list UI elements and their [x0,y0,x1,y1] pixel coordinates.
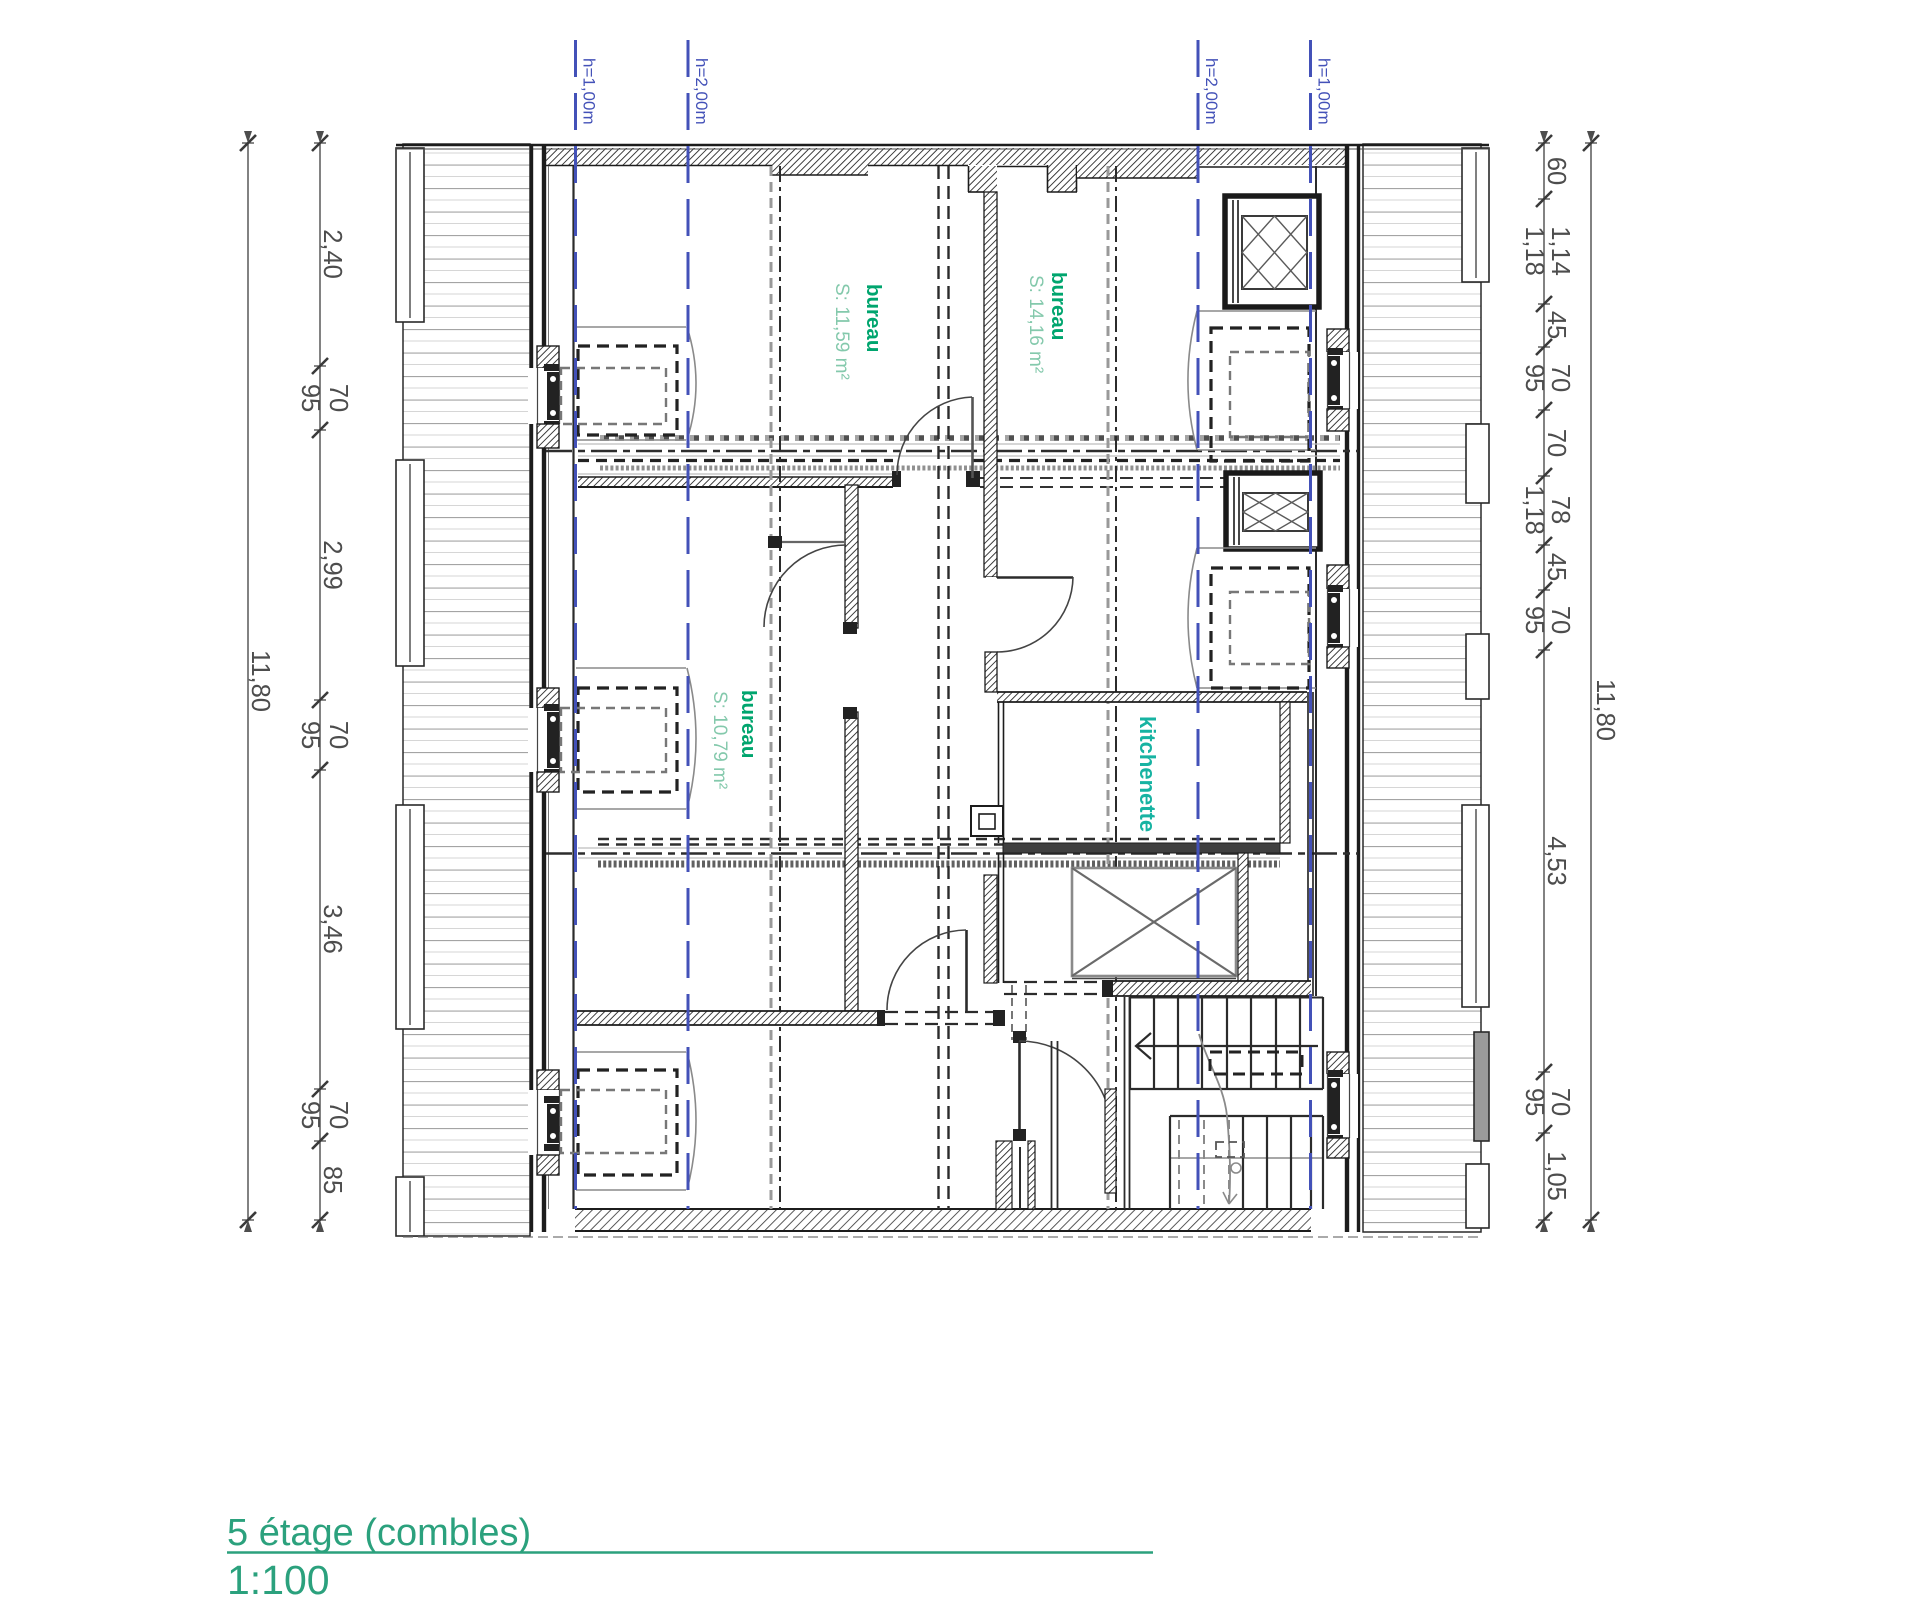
svg-text:11,80: 11,80 [246,650,274,712]
svg-text:1,18: 1,18 [1520,226,1548,276]
svg-text:h=2,00m: h=2,00m [692,58,711,125]
svg-text:bureau: bureau [1047,272,1070,340]
svg-text:70: 70 [1546,606,1574,634]
svg-text:95: 95 [296,1101,324,1129]
svg-text:5 étage (combles): 5 étage (combles) [227,1512,531,1554]
svg-text:h=1,00m: h=1,00m [1315,58,1334,125]
svg-text:45: 45 [1542,553,1570,581]
svg-text:S: 11,59 m²: S: 11,59 m² [831,283,852,380]
svg-text:70: 70 [324,1101,352,1129]
svg-text:bureau: bureau [862,284,885,352]
svg-text:h=2,00m: h=2,00m [1202,58,1221,125]
svg-text:4,53: 4,53 [1542,836,1570,886]
svg-text:95: 95 [1520,606,1548,634]
svg-text:2,99: 2,99 [318,540,346,590]
svg-text:h=1,00m: h=1,00m [580,58,599,125]
svg-text:95: 95 [1520,364,1548,392]
svg-text:1,14: 1,14 [1546,226,1574,276]
svg-text:bureau: bureau [737,690,760,758]
svg-text:95: 95 [1520,1088,1548,1116]
svg-text:1:100: 1:100 [227,1557,330,1600]
svg-text:kitchenette: kitchenette [1135,716,1160,832]
svg-text:78: 78 [1546,496,1574,524]
svg-text:45: 45 [1542,311,1570,339]
svg-text:95: 95 [296,721,324,749]
svg-text:11,80: 11,80 [1591,679,1619,741]
svg-text:S: 14,16 m²: S: 14,16 m² [1025,275,1046,373]
svg-text:85: 85 [318,1166,346,1194]
svg-text:1,18: 1,18 [1520,485,1548,535]
svg-text:70: 70 [324,721,352,749]
svg-text:95: 95 [296,384,324,412]
svg-text:70: 70 [324,384,352,412]
svg-text:2,40: 2,40 [318,229,346,279]
svg-text:1,05: 1,05 [1542,1151,1570,1201]
svg-text:60: 60 [1542,157,1570,185]
svg-text:S: 10,79 m²: S: 10,79 m² [709,691,730,789]
svg-text:70: 70 [1546,1088,1574,1116]
svg-text:70: 70 [1542,429,1570,457]
svg-text:70: 70 [1546,364,1574,392]
svg-text:3,46: 3,46 [318,904,346,954]
